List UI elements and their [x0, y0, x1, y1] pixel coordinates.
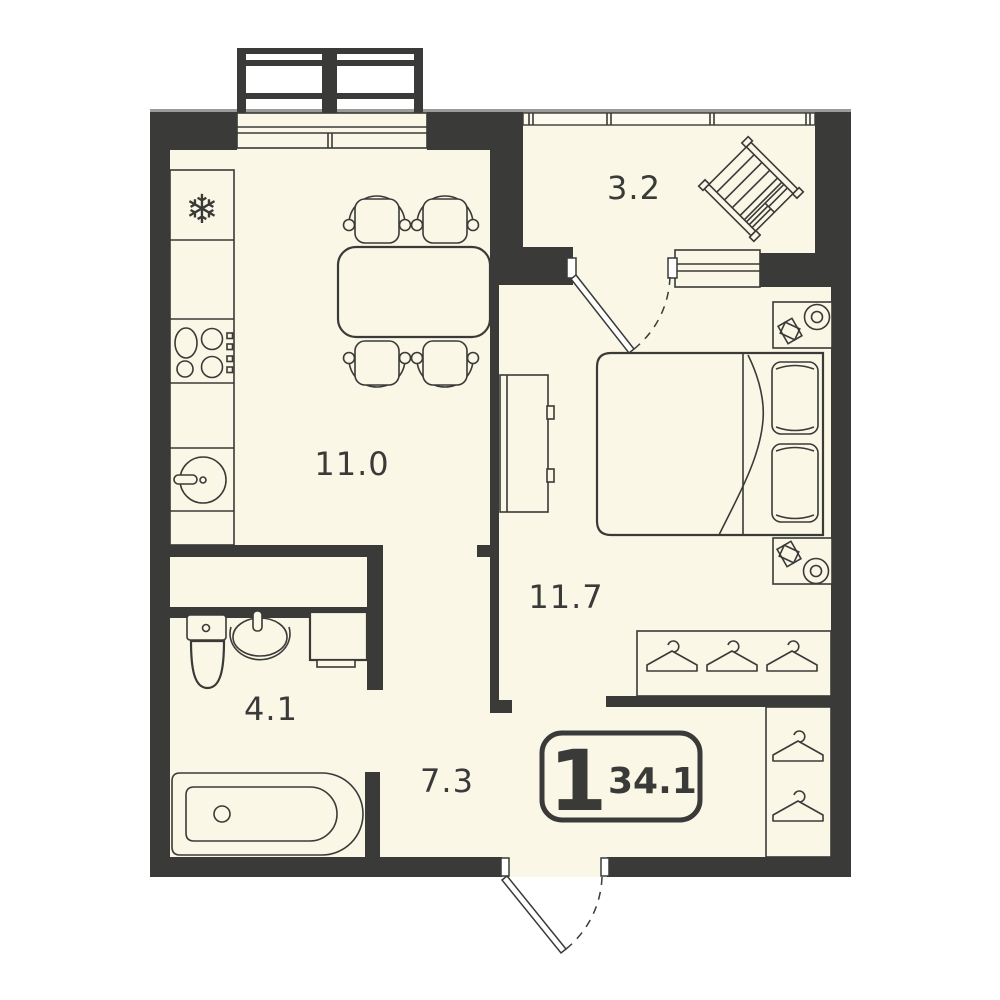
- railing-post: [414, 48, 423, 113]
- chair-armrest: [400, 353, 411, 364]
- door-jamb: [567, 258, 576, 278]
- wall-bathroom-top: [170, 545, 383, 557]
- tv-unit-knob: [547, 406, 554, 419]
- washer-base: [317, 660, 355, 667]
- door-jamb: [668, 258, 677, 278]
- door-leaf: [502, 876, 566, 953]
- tub-outer: [172, 773, 363, 855]
- wall-top-a: [150, 112, 237, 150]
- wall-balcony-door-side: [490, 247, 573, 285]
- chair-armrest: [412, 353, 423, 364]
- wall-divider-thick: [490, 112, 523, 247]
- wall-tub-stub: [365, 772, 380, 857]
- tv-unit-knob: [547, 469, 554, 482]
- wall-foot: [498, 700, 512, 713]
- window-frame: [675, 250, 760, 287]
- door-swing-arc: [566, 877, 602, 949]
- threshold: [509, 855, 601, 877]
- floor-plan: ❄: [0, 0, 1000, 1000]
- bathtub-icon: [172, 773, 363, 855]
- room-label-bedroom: 11.7: [528, 578, 603, 616]
- room-label-kitchen: 11.0: [314, 445, 389, 483]
- chair-seat: [355, 341, 399, 385]
- unit-info-badge: 1 34.1: [542, 732, 700, 830]
- total-area: 34.1: [608, 761, 697, 802]
- room-label-hallway: 7.3: [420, 762, 474, 800]
- wall-bottom-left: [150, 857, 502, 877]
- chair-armrest: [344, 353, 355, 364]
- wardrobe-outline: [766, 707, 831, 857]
- sink-tap: [253, 611, 262, 631]
- wall-under-balcony: [760, 253, 851, 287]
- wall-bottom-right: [607, 857, 851, 877]
- wall-left: [150, 112, 170, 877]
- tv-unit: [500, 375, 554, 512]
- chair-armrest: [468, 353, 479, 364]
- kitchen-counter: ❄: [170, 170, 234, 545]
- chair-armrest: [412, 220, 423, 231]
- railing-post: [322, 48, 337, 113]
- railing-post: [237, 48, 246, 113]
- chair-seat: [423, 199, 467, 243]
- toilet-tank: [187, 615, 226, 640]
- kitchen-window: [237, 113, 427, 148]
- floor-plan-canvas: ❄: [0, 0, 1000, 1000]
- door-jamb: [601, 858, 609, 876]
- washer-body: [310, 612, 367, 660]
- rooms-count: 1: [549, 732, 607, 830]
- wall-bathroom-right: [367, 545, 383, 690]
- fridge-icon: ❄: [185, 187, 219, 233]
- glazing-band: [523, 113, 815, 125]
- toilet-bowl: [191, 641, 224, 688]
- room-label-bathroom: 4.1: [244, 690, 298, 728]
- balcony-railing: [237, 48, 423, 113]
- nightstand: [773, 538, 832, 584]
- chair-armrest: [400, 220, 411, 231]
- chair-seat: [423, 341, 467, 385]
- wall-divider-thin: [490, 283, 499, 713]
- dining-set: [338, 196, 490, 387]
- chair-armrest: [344, 220, 355, 231]
- wall-tick: [477, 545, 490, 557]
- chair-armrest: [468, 220, 479, 231]
- dining-table: [338, 247, 490, 337]
- nightstand: [773, 302, 832, 348]
- entrance-door: [501, 855, 609, 953]
- wall-bedroom-hall: [606, 696, 831, 707]
- bed: [597, 353, 823, 535]
- chair-seat: [355, 199, 399, 243]
- sink-tap: [174, 475, 197, 484]
- wall-right: [831, 287, 851, 877]
- balcony-glazing: [523, 113, 815, 125]
- washing-machine-icon: [310, 612, 367, 667]
- door-jamb: [501, 858, 509, 876]
- wardrobe-bedroom: [637, 631, 831, 696]
- wall-balcony-right: [815, 112, 851, 253]
- room-label-balcony: 3.2: [607, 169, 661, 207]
- wardrobe-hallway: [766, 707, 831, 857]
- bedroom-window: [675, 250, 760, 287]
